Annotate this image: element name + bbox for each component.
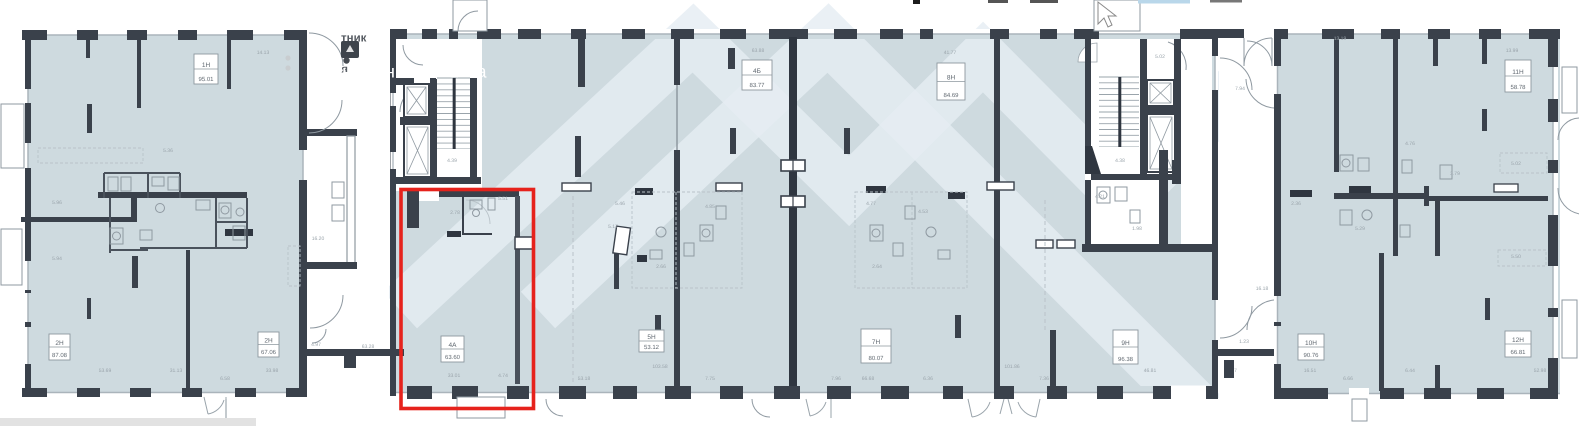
- svg-text:4.85: 4.85: [705, 204, 715, 210]
- svg-text:41.77: 41.77: [944, 50, 957, 56]
- svg-text:5.02: 5.02: [1511, 161, 1521, 167]
- svg-text:101.86: 101.86: [1004, 364, 1020, 370]
- svg-text:95.01: 95.01: [198, 76, 214, 83]
- svg-text:52.98: 52.98: [1534, 368, 1547, 374]
- svg-text:13.19: 13.19: [1334, 36, 1347, 42]
- svg-text:10Н: 10Н: [1305, 340, 1317, 347]
- svg-text:14.13: 14.13: [257, 50, 270, 56]
- svg-text:7.94: 7.94: [1235, 86, 1245, 92]
- svg-text:2.66: 2.66: [656, 264, 666, 270]
- svg-text:5.02: 5.02: [1155, 54, 1165, 60]
- svg-text:87.08: 87.08: [52, 352, 68, 359]
- svg-text:84.69: 84.69: [943, 92, 959, 99]
- svg-text:5.29: 5.29: [1355, 226, 1365, 232]
- svg-text:63.88: 63.88: [752, 48, 765, 54]
- svg-text:7.96: 7.96: [831, 376, 841, 382]
- svg-text:5.51: 5.51: [498, 196, 508, 202]
- svg-text:67.06: 67.06: [261, 349, 277, 356]
- svg-text:4.39: 4.39: [447, 158, 457, 164]
- svg-text:31.13: 31.13: [170, 368, 183, 374]
- svg-text:7.75: 7.75: [705, 376, 715, 382]
- svg-text:80.07: 80.07: [868, 355, 884, 362]
- svg-text:4.76: 4.76: [1405, 141, 1415, 147]
- svg-text:2Н: 2Н: [264, 338, 273, 345]
- svg-text:90.76: 90.76: [1303, 352, 1319, 359]
- svg-text:103.58: 103.58: [652, 364, 668, 370]
- svg-text:53.12: 53.12: [644, 344, 660, 351]
- svg-text:5Н: 5Н: [647, 334, 656, 341]
- svg-text:5.96: 5.96: [52, 200, 62, 206]
- svg-text:2.78: 2.78: [450, 210, 460, 216]
- svg-text:2Н: 2Н: [55, 340, 64, 347]
- svg-text:33.98: 33.98: [266, 368, 279, 374]
- svg-text:пониженная ставка: пониженная ставка: [322, 62, 488, 82]
- svg-text:5.94: 5.94: [52, 256, 62, 262]
- svg-text:13.99: 13.99: [1506, 48, 1519, 54]
- svg-text:2.36: 2.36: [1291, 201, 1301, 207]
- svg-text:5.36: 5.36: [163, 148, 173, 154]
- svg-text:53.69: 53.69: [99, 368, 112, 374]
- svg-text:7Н: 7Н: [872, 339, 881, 346]
- svg-text:4.38: 4.38: [1115, 158, 1125, 164]
- svg-text:6.36: 6.36: [923, 376, 933, 382]
- svg-text:33.01: 33.01: [448, 373, 461, 379]
- svg-text:16.51: 16.51: [1304, 368, 1317, 374]
- svg-text:7.36: 7.36: [1039, 376, 1049, 382]
- svg-text:4.74: 4.74: [498, 373, 508, 379]
- svg-text:4Б: 4Б: [753, 68, 761, 75]
- svg-text:9Н: 9Н: [1121, 340, 1130, 347]
- svg-text:1.23: 1.23: [1239, 339, 1249, 345]
- svg-text:16.20: 16.20: [312, 236, 325, 242]
- svg-text:4А: 4А: [449, 342, 458, 349]
- svg-text:12Н: 12Н: [1512, 337, 1524, 344]
- svg-text:63.28: 63.28: [362, 344, 375, 350]
- svg-text:16.18: 16.18: [1256, 286, 1269, 292]
- svg-text:6.44: 6.44: [1405, 368, 1415, 374]
- svg-text:11Н: 11Н: [1512, 69, 1524, 76]
- svg-text:53.18: 53.18: [578, 376, 591, 382]
- svg-text:8Н: 8Н: [947, 75, 956, 82]
- svg-text:58.78: 58.78: [1510, 84, 1526, 91]
- svg-text:6.66: 6.66: [1343, 376, 1353, 382]
- svg-text:4.97: 4.97: [311, 342, 321, 348]
- svg-text:5.17: 5.17: [608, 224, 618, 230]
- svg-text:1.98: 1.98: [1132, 226, 1142, 232]
- svg-text:46.81: 46.81: [1144, 368, 1157, 374]
- svg-text:4.77: 4.77: [866, 201, 876, 207]
- svg-text:5.46: 5.46: [615, 201, 625, 207]
- svg-text:63.60: 63.60: [445, 354, 461, 361]
- svg-text:3.79: 3.79: [1450, 171, 1460, 177]
- svg-text:66.81: 66.81: [1510, 349, 1526, 356]
- svg-text:2.64: 2.64: [872, 264, 882, 270]
- svg-text:66.68: 66.68: [862, 376, 875, 382]
- svg-text:4.53: 4.53: [918, 209, 928, 215]
- svg-text:6.58: 6.58: [220, 376, 230, 382]
- svg-text:5.50: 5.50: [1511, 254, 1521, 260]
- svg-text:96.38: 96.38: [1118, 356, 1134, 363]
- svg-text:1Н: 1Н: [202, 62, 211, 69]
- svg-text:83.77: 83.77: [749, 82, 765, 89]
